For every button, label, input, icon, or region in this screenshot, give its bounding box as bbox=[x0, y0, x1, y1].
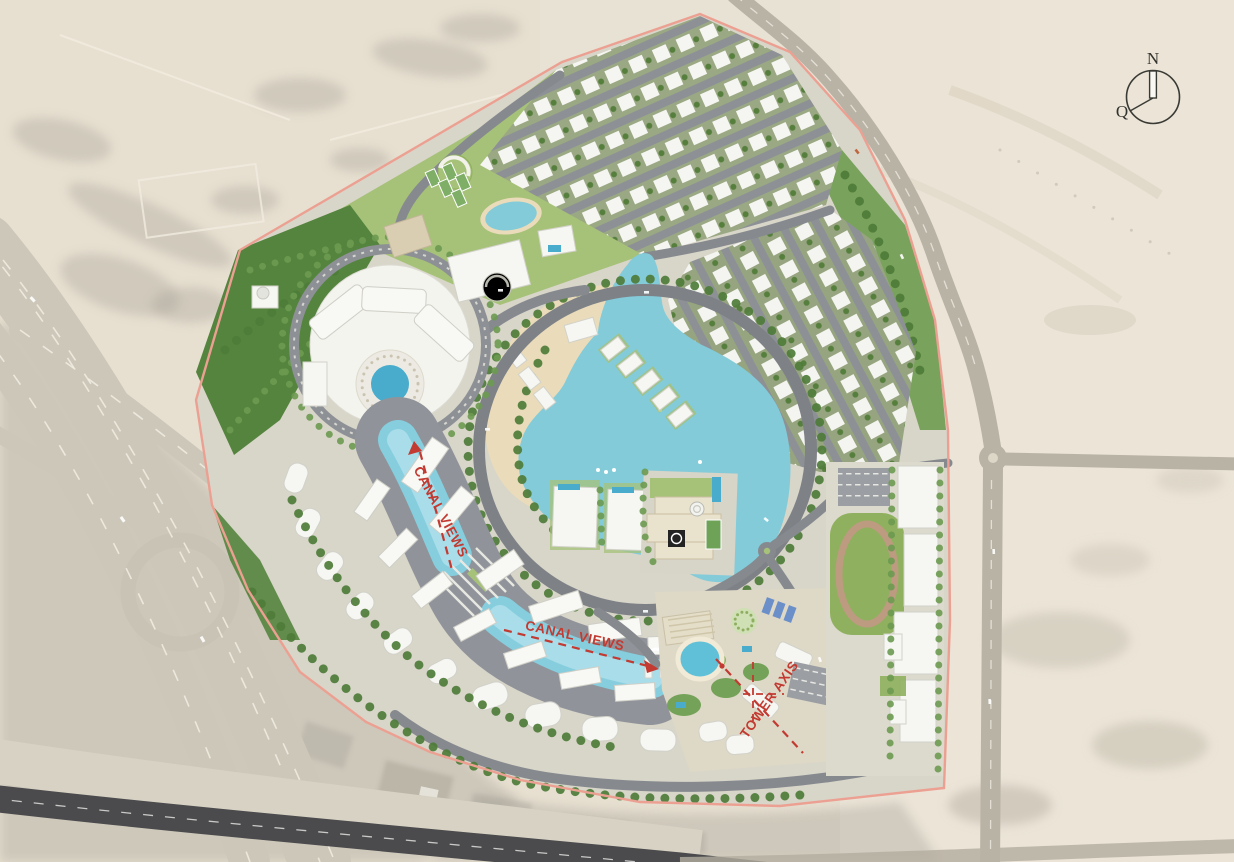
compass-qibla-label: Q bbox=[1116, 102, 1128, 121]
compass-needle bbox=[1150, 71, 1157, 98]
master-plan-map: CANAL VIEWS CANAL VIEWS TOWER AXIS N Q bbox=[0, 0, 1234, 862]
flower-pool bbox=[371, 365, 409, 403]
west-bar-building bbox=[303, 362, 327, 406]
compass-north-label: N bbox=[1147, 49, 1159, 68]
resort-lagoon-pool bbox=[678, 639, 722, 679]
tower-north bbox=[361, 286, 426, 313]
school-parking bbox=[838, 468, 890, 506]
tennis-court bbox=[706, 520, 721, 549]
palace-logo-pad bbox=[668, 530, 685, 547]
palace-pool bbox=[712, 477, 721, 502]
helipad bbox=[690, 502, 704, 516]
palace-compound bbox=[640, 470, 738, 575]
school-campus bbox=[826, 462, 944, 778]
pavilion-building bbox=[538, 225, 576, 257]
lakeside-apartments bbox=[550, 480, 654, 553]
master-plan-page: CANAL VIEWS CANAL VIEWS TOWER AXIS N Q bbox=[0, 0, 1234, 862]
